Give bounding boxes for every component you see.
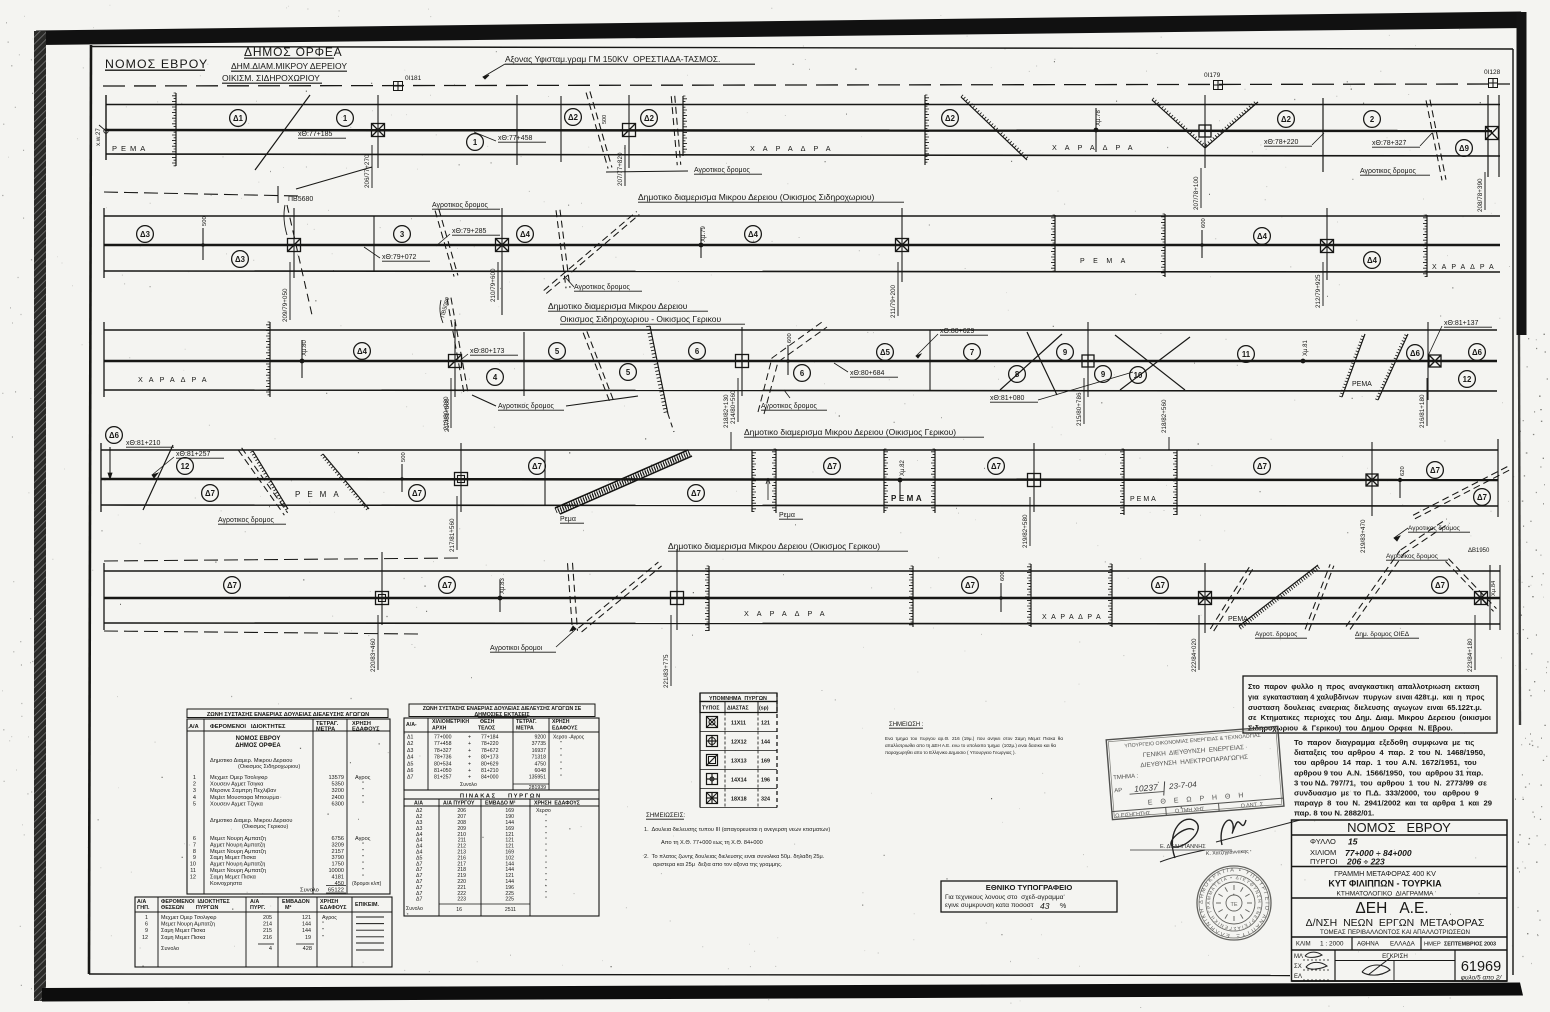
svg-text:xΘ:80+684: xΘ:80+684 [850, 370, 885, 377]
svg-text:210/79+600: 210/79+600 [490, 268, 497, 302]
svg-text:2. Το πλατος ζωνης δουλειας δ: 2. Το πλατος ζωνης δουλειας διελευσης ει… [644, 854, 825, 860]
svg-text:συνδυασμο με το Π.Δ. 333/2: συνδυασμο με το Π.Δ. 333/2000, του αρθρο… [1294, 789, 1479, 798]
svg-text:3790: 3790 [332, 855, 344, 861]
svg-text:Δ7: Δ7 [965, 581, 975, 590]
svg-text:Για τεχνικους λονους στο σχεδ: Για τεχνικους λονους στο σχεδ-αγραμμα [945, 894, 1064, 901]
svg-text:2: 2 [1370, 115, 1375, 124]
svg-text:6756: 6756 [332, 836, 344, 842]
svg-text:": " [560, 748, 562, 754]
svg-text:Δ4: Δ4 [407, 755, 413, 761]
svg-text:211/79+200: 211/79+200 [890, 285, 897, 318]
svg-text:Δ4: Δ4 [357, 347, 368, 356]
svg-text:Ενα τμημα του πυργου αρ.Θ.: Ενα τμημα του πυργου αρ.Θ. 216 (19μ.) πο… [885, 736, 1063, 741]
svg-text:Δημοτικο διαμερισμα Μικρου Δερ: Δημοτικο διαμερισμα Μικρου Δερειου [548, 301, 688, 311]
svg-text:206 ÷ 223: 206 ÷ 223 [1346, 857, 1385, 867]
svg-text:81+050: 81+050 [434, 768, 452, 774]
svg-text:Δ7: Δ7 [691, 489, 701, 498]
svg-text:600: 600 [1000, 571, 1006, 581]
svg-text:ΧΡΗΣΗ ΕΔΑΦΟΥΣ: ΧΡΗΣΗ ΕΔΑΦΟΥΣ [534, 801, 580, 807]
svg-text:xΘ:79+285: xΘ:79+285 [452, 228, 487, 235]
svg-text:ΤΕΤΡΑΓ.: ΤΕΤΡΑΓ. [516, 719, 537, 725]
svg-text:Δ1: Δ1 [233, 114, 244, 123]
svg-text:9: 9 [1101, 370, 1106, 379]
svg-text:Κοινοχρηστα: Κοινοχρηστα [210, 881, 243, 887]
svg-text:ΓΡΑΜΜΗ ΜΕΤΑΦΟΡΑΣ 400 KV: ΓΡΑΜΜΗ ΜΕΤΑΦΟΡΑΣ 400 KV [1334, 869, 1436, 878]
svg-text:Συνολο: Συνολο [161, 946, 179, 952]
svg-text:1750: 1750 [332, 862, 344, 868]
svg-text:8: 8 [1015, 370, 1020, 379]
svg-text:xΘ:77+458: xΘ:77+458 [498, 135, 533, 142]
svg-text:208/78+390: 208/78+390 [1477, 178, 1484, 212]
svg-text:ΣΗΜΕΙΩΣΕΙΣ:: ΣΗΜΕΙΩΣΕΙΣ: [646, 812, 685, 819]
svg-text:Συνολο: Συνολο [406, 906, 423, 912]
svg-text:14X14: 14X14 [731, 778, 747, 784]
svg-text:Μεμετ Νουρη Αμπατζη: Μεμετ Νουρη Αμπατζη [210, 868, 266, 874]
svg-text:Χερσο: Χερσο [536, 808, 551, 814]
svg-text:παρ. 8 του Ν. 2882/01.: παρ. 8 του Ν. 2882/01. [1294, 809, 1374, 818]
svg-text:600: 600 [787, 333, 793, 343]
svg-text:Δ2: Δ2 [568, 113, 579, 122]
svg-text:(sp): (sp) [759, 706, 769, 712]
svg-text:222/84+020: 222/84+020 [1191, 638, 1198, 672]
svg-text:620: 620 [1400, 466, 1406, 476]
svg-text:ΗΜΕΡ: ΗΜΕΡ [1424, 942, 1441, 948]
svg-text:Ρεμα: Ρεμα [779, 512, 795, 519]
svg-text:Αχμετ Νουρη Αμπατζη: Αχμετ Νουρη Αμπατζη [210, 862, 265, 868]
svg-text:Δημοτικο διαμερισμα Μικρου Δερ: Δημοτικο διαμερισμα Μικρου Δερειου (Οικι… [668, 541, 880, 551]
svg-text:12: 12 [190, 874, 196, 880]
svg-text:Απο τη Χ.Θ. 77+000 εως τη Χ.Θ.: Απο τη Χ.Θ. 77+000 εως τη Χ.Θ. 84+000 [661, 840, 763, 846]
svg-text:1 : 2000: 1 : 2000 [1320, 941, 1344, 948]
svg-text:ΜΛ: ΜΛ [1294, 954, 1303, 960]
svg-text:Δ1: Δ1 [407, 735, 413, 741]
svg-text:6: 6 [193, 836, 196, 842]
svg-text:78+672: 78+672 [481, 748, 499, 754]
svg-text:Χερσο -Αγρος: Χερσο -Αγρος [553, 735, 585, 741]
svg-text:ΕΛ: ΕΛ [1294, 974, 1302, 980]
svg-text:": " [322, 935, 324, 941]
svg-text:144: 144 [761, 740, 770, 746]
svg-text:ΚΛΙΜ: ΚΛΙΜ [1296, 942, 1311, 948]
svg-text:xΘ:80+629: xΘ:80+629 [940, 328, 975, 335]
svg-text:13579: 13579 [328, 775, 344, 781]
svg-text:": " [362, 849, 364, 855]
svg-text:xΘ:78+220: xΘ:78+220 [1264, 139, 1299, 146]
svg-text:+: + [468, 761, 471, 767]
svg-text:Δ6: Δ6 [1472, 348, 1483, 357]
svg-text:": " [560, 761, 562, 767]
svg-text:81+257: 81+257 [434, 775, 452, 781]
svg-text:συσταση δουλειας εναεριας δ: συσταση δουλειας εναεριας διελευσης αγωγ… [1248, 703, 1482, 712]
svg-text:Δ7: Δ7 [1477, 493, 1487, 502]
svg-text:": " [362, 868, 364, 874]
svg-text:Αξονας Υφισταμ.γραμ ΓΜ 150ΚV: Αξονας Υφισταμ.γραμ ΓΜ 150ΚV ΟΡΕΣΤΙΑΔΑ-Τ… [505, 54, 720, 64]
svg-text:215/80+786: 215/80+786 [1076, 392, 1083, 426]
svg-text:Δ4: Δ4 [748, 230, 759, 239]
svg-text:9: 9 [1063, 348, 1068, 357]
svg-text:217/81+560: 217/81+560 [449, 518, 456, 552]
svg-text:Δ9: Δ9 [1459, 144, 1470, 153]
svg-text:10: 10 [1134, 371, 1143, 380]
svg-text:12X12: 12X12 [731, 740, 747, 746]
svg-text:Σαμη Μεμετ Πισκα: Σαμη Μεμετ Πισκα [210, 855, 257, 861]
svg-text:Αγροτικος δρομος: Αγροτικος δρομος [694, 167, 750, 174]
svg-text:ΕΠΙΚΕΙΜ.: ΕΠΙΚΕΙΜ. [355, 902, 379, 908]
svg-text:3 του ΝΔ. 797/71, του αρθρου: 3 του ΝΔ. 797/71, του αρθρου 1 του Ν. 27… [1294, 778, 1487, 787]
svg-text:9200: 9200 [534, 735, 546, 741]
svg-text:ΜΕΤΡΑ: ΜΕΤΡΑ [516, 726, 534, 732]
svg-text:144: 144 [302, 922, 311, 928]
svg-text:ΕΔΑΦΟΥΣ: ΕΔΑΦΟΥΣ [352, 727, 380, 733]
svg-text:37735: 37735 [532, 741, 547, 747]
svg-text:Σαμη Μεμετ Πισκα: Σαμη Μεμετ Πισκα [210, 874, 257, 880]
svg-text:4: 4 [493, 373, 498, 382]
svg-text:500: 500 [401, 452, 407, 462]
svg-text:xΘ:78+327: xΘ:78+327 [1372, 140, 1407, 147]
svg-text:ΧΑΡΑΔΡΑ: ΧΑΡΑΔΡΑ [750, 144, 839, 153]
svg-text:207/78+100: 207/78+100 [1193, 176, 1200, 210]
svg-text:1: 1 [473, 138, 478, 147]
svg-text:ΕΔΑΦΟΥΣ: ΕΔΑΦΟΥΣ [552, 726, 578, 732]
svg-text:Δημοτικο διαμερισμα Μικρου Δερ: Δημοτικο διαμερισμα Μικρου Δερειου (Οικι… [744, 427, 956, 437]
svg-text:του αρθρου 14 παρ. 1 του: του αρθρου 14 παρ. 1 του Α.Ν. 1672/1951,… [1294, 758, 1477, 767]
svg-text:ΤΕ: ΤΕ [1230, 902, 1237, 908]
svg-text:Δ7: Δ7 [991, 462, 1001, 471]
svg-text:Ρεμα: Ρεμα [560, 516, 576, 523]
svg-text:Συνολο: Συνολο [300, 888, 319, 894]
svg-text:71318: 71318 [532, 755, 547, 761]
svg-text:Αγροτικος δρομος: Αγροτικος δρομος [761, 403, 817, 410]
svg-text:15: 15 [1348, 837, 1358, 847]
svg-text:205: 205 [263, 915, 272, 921]
svg-text:(Οικισμος Σιδηροχωριου): (Οικισμος Σιδηροχωριου) [238, 764, 300, 770]
svg-text:500: 500 [202, 216, 208, 226]
svg-text:78+220: 78+220 [481, 741, 499, 747]
svg-text:Χουσειν Αχμετ Τσιγκα: Χουσειν Αχμετ Τσιγκα [210, 782, 264, 788]
svg-text:ΡΕΜΑ: ΡΕΜΑ [891, 494, 924, 503]
svg-text:ΝΟΜΟΣ ΕΒΡΟΥ: ΝΟΜΟΣ ΕΒΡΟΥ [105, 57, 208, 71]
svg-text:Αγροτικος δρομος: Αγροτικος δρομος [218, 517, 274, 524]
svg-text:ΔΗΜΟΣ ΟΡΦΕΑ: ΔΗΜΟΣ ΟΡΦΕΑ [244, 45, 342, 59]
svg-text:ΤΕΛΟΣ: ΤΕΛΟΣ [478, 726, 495, 732]
svg-text:ΧΙΛΙΟΜΕΤΡΙΚΗ: ΧΙΛΙΟΜΕΤΡΙΚΗ [432, 719, 469, 725]
svg-text:12: 12 [142, 935, 148, 941]
svg-text:Σαμη Μεμετ Πισκα: Σαμη Μεμετ Πισκα [161, 935, 205, 941]
svg-text:ΕΛΛΑΔΑ: ΕΛΛΑΔΑ [1390, 941, 1416, 948]
svg-text:Μ²: Μ² [285, 905, 291, 911]
svg-text:Χμ.83: Χμ.83 [500, 578, 506, 594]
svg-text:Δ7: Δ7 [407, 775, 413, 781]
svg-text:Α/Α: Α/Α [414, 801, 423, 807]
svg-text:Δ4: Δ4 [1257, 232, 1268, 241]
svg-text:223: 223 [457, 897, 466, 903]
svg-text:Δ5: Δ5 [880, 348, 891, 357]
svg-text:4: 4 [193, 795, 196, 801]
svg-text:+: + [468, 748, 471, 754]
svg-text:ΣΧ: ΣΧ [1294, 964, 1302, 970]
svg-text:Μερσινε Σαμπρη Πεχλιβαν: Μερσινε Σαμπρη Πεχλιβαν [210, 788, 276, 794]
svg-text:ΣΕΠΤΕΜΒΡΙΟΣ 2003: ΣΕΠΤΕΜΒΡΙΟΣ 2003 [1444, 942, 1496, 948]
svg-text:Δ/ΝΣΗ ΝΕΩΝ ΕΡΓΩΝ ΜΕΤΑΦΟΡΑΣ: Δ/ΝΣΗ ΝΕΩΝ ΕΡΓΩΝ ΜΕΤΑΦΟΡΑΣ [1306, 917, 1485, 929]
svg-text:Δ7: Δ7 [1155, 581, 1165, 590]
svg-text:6: 6 [145, 922, 148, 928]
svg-text:207/77+820: 207/77+820 [617, 152, 624, 186]
svg-text:500: 500 [602, 115, 608, 124]
svg-text:16937: 16937 [532, 748, 547, 754]
svg-text:φυλο/5 απο 2/: φυλο/5 απο 2/ [1461, 975, 1503, 982]
svg-text:10000: 10000 [328, 868, 344, 874]
svg-text:Μεμετ Μουσταφα Μπουρμα: Μεμετ Μουσταφα Μπουρμα [210, 795, 280, 801]
svg-text:Δ7: Δ7 [1430, 466, 1440, 475]
svg-text:(δρομοι κλπ): (δρομοι κλπ) [352, 881, 382, 887]
svg-text:218/82+560: 218/82+560 [1161, 399, 1168, 433]
svg-text:Δ4: Δ4 [1367, 256, 1378, 265]
svg-text:221/83+775: 221/83+775 [663, 654, 670, 688]
svg-text:Δ5: Δ5 [407, 761, 413, 767]
svg-text:ΑΡ: ΑΡ [1114, 788, 1122, 795]
svg-text:αρθρου 9 του Α.Ν. 1566/1950,: αρθρου 9 του Α.Ν. 1566/1950, του αρθρου … [1294, 768, 1483, 777]
svg-text:61969: 61969 [1461, 959, 1501, 975]
svg-text:12: 12 [181, 462, 190, 471]
svg-text:220/83+460: 220/83+460 [370, 638, 377, 672]
svg-text:": " [362, 782, 364, 788]
svg-text:ΡΕΜΑ: ΡΕΜΑ [1352, 381, 1372, 388]
svg-text:ΕΜΒΑΔΟ Μ²: ΕΜΒΑΔΟ Μ² [485, 801, 516, 807]
svg-text:10: 10 [190, 862, 196, 868]
svg-text:214: 214 [263, 922, 272, 928]
svg-text:215: 215 [263, 928, 272, 934]
svg-text:11: 11 [1242, 350, 1251, 359]
svg-text:6: 6 [695, 347, 700, 356]
svg-text:ΤΟΜΕΑΣ ΠΕΡΙΒΑΛΛΟΝΤΟΣ ΚΑΙ ΑΠΑΛΛ: ΤΟΜΕΑΣ ΠΕΡΙΒΑΛΛΟΝΤΟΣ ΚΑΙ ΑΠΑΛΛΟΤΡΙΩΣΕΩΝ [1320, 929, 1470, 936]
svg-text:": " [545, 897, 547, 903]
svg-text:Α/Α: Α/Α [189, 724, 199, 730]
svg-text:2157: 2157 [332, 849, 344, 855]
svg-text:219/83+470: 219/83+470 [1360, 519, 1367, 553]
svg-text:Δ6: Δ6 [1410, 349, 1421, 358]
svg-text:Αγροτικοι δρομοι: Αγροτικοι δρομοι [490, 645, 543, 652]
svg-text:Χμ.79: Χμ.79 [701, 226, 707, 242]
svg-text:77+000: 77+000 [434, 735, 452, 741]
svg-text:Α/Α ΠΥΡΓΟΥ: Α/Α ΠΥΡΓΟΥ [443, 801, 475, 807]
svg-text:ΠΒ5680: ΠΒ5680 [288, 196, 313, 203]
svg-text:Χμ.81: Χμ.81 [1303, 340, 1309, 356]
svg-text:4181: 4181 [332, 874, 344, 880]
svg-text:": " [362, 801, 364, 807]
svg-text:Αγροτικος δρομος: Αγροτικος δρομος [1360, 168, 1416, 175]
svg-text:Δ7: Δ7 [827, 462, 837, 471]
svg-text:ΑΡΧΗ: ΑΡΧΗ [432, 726, 447, 732]
svg-text:12: 12 [1463, 375, 1472, 384]
svg-text:ΟΙΚΙΣΜ. ΣΙΔΗΡΟΧΩΡΙΟΥ: ΟΙΚΙΣΜ. ΣΙΔΗΡΟΧΩΡΙΟΥ [222, 73, 320, 83]
svg-text:ΘΕΣΗ: ΘΕΣΗ [480, 719, 495, 725]
svg-text:2: 2 [193, 782, 196, 788]
svg-text:ΔΕΗ Α.Ε.: ΔΕΗ Α.Ε. [1355, 900, 1428, 917]
svg-text:0I128: 0I128 [1484, 69, 1501, 76]
svg-text:2511: 2511 [505, 907, 516, 913]
svg-text:xΘ:80+173: xΘ:80+173 [470, 348, 505, 355]
svg-text:Μεμετ Νουρη Αμπατζη: Μεμετ Νουρη Αμπατζη [210, 849, 266, 855]
svg-text:169: 169 [761, 759, 770, 765]
svg-text:": " [362, 795, 364, 801]
svg-text:Δ7: Δ7 [1435, 581, 1445, 590]
svg-text:ΜΕΤΡΑ: ΜΕΤΡΑ [316, 727, 335, 733]
svg-text:80+173: 80+173 [481, 755, 499, 761]
svg-text:ΡΕΜΑ: ΡΕΜΑ [112, 144, 149, 153]
svg-text:Αγροτικος δρομος: Αγροτικος δρομος [1408, 525, 1460, 532]
svg-text:6048: 6048 [534, 768, 546, 774]
svg-text:Δ7: Δ7 [227, 581, 237, 590]
svg-text:80+534: 80+534 [434, 761, 452, 767]
svg-text:(Οικισμος Γερικου): (Οικισμος Γερικου) [242, 824, 288, 830]
svg-text:Οικισμος Σιδηροχωριου - Οικισμ: Οικισμος Σιδηροχωριου - Οικισμος Γερικου [560, 314, 721, 324]
svg-text:αριστερα και 25μ δεξια απο το: αριστερα και 25μ δεξια απο τον αξονα της… [653, 862, 783, 868]
svg-text:Δ7: Δ7 [416, 897, 422, 903]
svg-text:εγινε συμκρυνση κατα ποσοστ: εγινε συμκρυνση κατα ποσοστ [945, 902, 1034, 909]
svg-text:19: 19 [305, 935, 311, 941]
svg-text:": " [362, 874, 364, 880]
svg-text:Δ7: Δ7 [442, 581, 452, 590]
svg-text:77+184: 77+184 [481, 735, 499, 741]
svg-text:3: 3 [193, 788, 196, 794]
svg-text:7: 7 [970, 348, 974, 357]
svg-text:xΘ:81+257: xΘ:81+257 [176, 451, 211, 458]
svg-text:": " [322, 928, 324, 934]
svg-text:1: 1 [145, 915, 148, 921]
svg-text:324: 324 [761, 797, 770, 803]
svg-text:Δ6: Δ6 [109, 431, 120, 440]
svg-text:": " [362, 855, 364, 861]
svg-text:Χμ.78: Χμ.78 [1096, 110, 1102, 126]
svg-text:Αγροτ. δρομος: Αγροτ. δρομος [1255, 631, 1297, 638]
svg-text:Δημοτικο διαμερισμα Μικρου Δερ: Δημοτικο διαμερισμα Μικρου Δερειου (Οικι… [638, 192, 874, 202]
svg-text:ΘΕΣΕΩΝ ΠΥΡΓΩΝ: ΘΕΣΕΩΝ ΠΥΡΓΩΝ [161, 905, 218, 911]
svg-text:για εγκαταστααη 4 χαλυβδινων: για εγκαταστααη 4 χαλυβδινων πυργων εινα… [1248, 692, 1485, 701]
svg-text:x.w.27: x.w.27 [95, 128, 102, 146]
svg-text:77+458: 77+458 [434, 741, 452, 747]
svg-text:ΡΕΜΑ: ΡΕΜΑ [1130, 496, 1158, 503]
svg-text:Μεμετ Νουρη Αμπατζη: Μεμετ Νουρη Αμπατζη [161, 922, 215, 928]
svg-text:Δ7: Δ7 [532, 462, 542, 471]
svg-text:ΧΡΗΣΗ: ΧΡΗΣΗ [552, 719, 570, 725]
svg-text:6: 6 [800, 369, 805, 378]
svg-text:Συνολο: Συνολο [460, 782, 477, 788]
svg-text:5: 5 [626, 368, 631, 377]
svg-text:Χμ.82: Χμ.82 [900, 460, 906, 476]
svg-text:ΔΙΑΣΤΑΣ: ΔΙΑΣΤΑΣ [727, 706, 749, 712]
svg-text:": " [362, 862, 364, 868]
svg-text:ΧΙΛΙΟΜ: ΧΙΛΙΟΜ [1310, 848, 1336, 857]
svg-text:Α/Α-: Α/Α- [406, 722, 417, 728]
svg-text:ΝΟΜΟΣ ΕΒΡΟΥ: ΝΟΜΟΣ ΕΒΡΟΥ [236, 736, 281, 742]
svg-text:Αγρος: Αγρος [322, 915, 337, 921]
svg-text:212/79+925: 212/79+925 [1315, 274, 1322, 308]
svg-text:Αγροτικος δρομος: Αγροτικος δρομος [498, 403, 554, 410]
svg-text:παραχωρηθει απο το Ελληνικο Δη: παραχωρηθει απο το Ελληνικο Δημοσιο ( Υπ… [885, 750, 1016, 755]
svg-text:Ε. ΔΕΛΗΓΙΑΝΝΗΣ: Ε. ΔΕΛΗΓΙΑΝΝΗΣ [1160, 844, 1206, 850]
svg-text:84+000: 84+000 [481, 775, 499, 781]
svg-text:Δ2: Δ2 [644, 114, 655, 123]
svg-text:ΝΟΜΟΣ ΕΒΡΟΥ: ΝΟΜΟΣ ΕΒΡΟΥ [1347, 820, 1451, 835]
svg-text:3209: 3209 [332, 842, 344, 848]
svg-text:ΤΥΠΟΣ: ΤΥΠΟΣ [702, 706, 720, 712]
svg-text:43: 43 [1040, 901, 1050, 911]
svg-text:ΦΕΡΟΜΕΝΟΙ ΙΔΙΟΚΤΗΤΕΣ: ΦΕΡΟΜΕΝΟΙ ΙΔΙΟΚΤΗΤΕΣ [210, 724, 286, 730]
svg-text:218/82+130: 218/82+130 [723, 394, 730, 428]
svg-text:223/84+180: 223/84+180 [1467, 638, 1474, 672]
svg-text:428: 428 [303, 946, 312, 952]
svg-text:11: 11 [190, 868, 196, 874]
svg-text:135951: 135951 [529, 775, 546, 781]
svg-text:xΘ:81+210: xΘ:81+210 [126, 440, 161, 447]
svg-text:Δ3: Δ3 [407, 748, 413, 754]
svg-text:78+736: 78+736 [434, 755, 452, 761]
svg-text:ΕΓΚΡΙΣΗ: ΕΓΚΡΙΣΗ [1382, 953, 1408, 960]
svg-text:ΧΑΡΑΔΡΑ: ΧΑΡΑΔΡΑ [1432, 264, 1499, 271]
svg-text:Δ2: Δ2 [1281, 115, 1292, 124]
svg-text:ΔΗΜΟΣ ΟΡΦΕΑ: ΔΗΜΟΣ ΟΡΦΕΑ [235, 743, 281, 749]
svg-text:80+629: 80+629 [481, 761, 499, 767]
svg-text:2400: 2400 [332, 795, 344, 801]
svg-text:παραγρ 8 του Ν. 2941/2002: παραγρ 8 του Ν. 2941/2002 και τα αρθρα 1… [1294, 799, 1492, 808]
svg-text:78+327: 78+327 [434, 748, 452, 754]
svg-text:1: 1 [193, 775, 196, 781]
svg-text:": " [560, 741, 562, 747]
svg-text:1. Δουλεια διελευσης τυπου ΙΙ: 1. Δουλεια διελευσης τυπου ΙΙΙ (απαγορευ… [644, 827, 830, 833]
svg-text:ΔΗΜ.ΔΙΑΜ.ΜΙΚΡΟΥ ΔΕΡΕΙΟΥ: ΔΗΜ.ΔΙΑΜ.ΜΙΚΡΟΥ ΔΕΡΕΙΟΥ [231, 61, 347, 71]
svg-text:ΧΑΡΑΔΡΑ: ΧΑΡΑΔΡΑ [1042, 614, 1105, 621]
svg-text:7: 7 [193, 842, 196, 848]
svg-text:196: 196 [761, 778, 770, 784]
svg-text:Δ7: Δ7 [205, 489, 215, 498]
svg-text:217/81+860: 217/81+860 [444, 398, 451, 432]
svg-text:": " [560, 775, 562, 781]
svg-text:Αγρος: Αγρος [355, 836, 371, 842]
svg-text:Δ6: Δ6 [407, 768, 413, 774]
svg-text:+: + [468, 741, 471, 747]
svg-text:206/77+270: 206/77+270 [364, 154, 371, 188]
svg-text:214/80+560: 214/80+560 [730, 390, 737, 424]
svg-text:18X18: 18X18 [731, 797, 747, 803]
svg-text:ΔΒ1950: ΔΒ1950 [1468, 548, 1490, 554]
svg-text:ΠΥΡΓΟΙ: ΠΥΡΓΟΙ [1310, 857, 1337, 866]
svg-text:Δ4: Δ4 [520, 230, 531, 239]
svg-text:216: 216 [263, 935, 272, 941]
svg-text:3: 3 [400, 230, 405, 239]
svg-text:16: 16 [456, 907, 462, 913]
svg-text:4750: 4750 [534, 761, 546, 767]
svg-text:81+210: 81+210 [481, 768, 499, 774]
svg-text:Δ2: Δ2 [945, 114, 956, 123]
svg-text:9: 9 [145, 928, 148, 934]
svg-text:6300: 6300 [332, 801, 344, 807]
svg-text:3200: 3200 [332, 788, 344, 794]
svg-text:διαταξεις του αρθρου 4 παρ: διαταξεις του αρθρου 4 παρ. 2 του Ν. 146… [1294, 748, 1485, 757]
svg-text:xΘ:81+080: xΘ:81+080 [990, 395, 1025, 402]
svg-text:121: 121 [302, 915, 311, 921]
svg-text:121: 121 [761, 721, 770, 727]
svg-text:Στο παρον φυλλο η προς αν: Στο παρον φυλλο η προς αναγκαστικη απαλλ… [1248, 682, 1480, 691]
svg-text:ΚΤΗΜΑΤΟΛΟΓΙΚΟ ΔΙΑΓΡΑΜΜΑ: ΚΤΗΜΑΤΟΛΟΓΙΚΟ ΔΙΑΓΡΑΜΜΑ [1337, 891, 1435, 898]
svg-text:ΦΥΛΛΟ: ΦΥΛΛΟ [1310, 837, 1336, 846]
svg-text:ΕΔΑΦΟΥΣ: ΕΔΑΦΟΥΣ [320, 905, 347, 911]
svg-text:xΘ:77+185: xΘ:77+185 [298, 131, 333, 138]
svg-text:ΡΕΜΑ: ΡΕΜΑ [295, 490, 346, 499]
svg-text:1: 1 [343, 114, 348, 123]
svg-text:Δ3: Δ3 [140, 230, 151, 239]
svg-text:Δ7: Δ7 [412, 489, 422, 498]
svg-text:600: 600 [1201, 218, 1207, 228]
